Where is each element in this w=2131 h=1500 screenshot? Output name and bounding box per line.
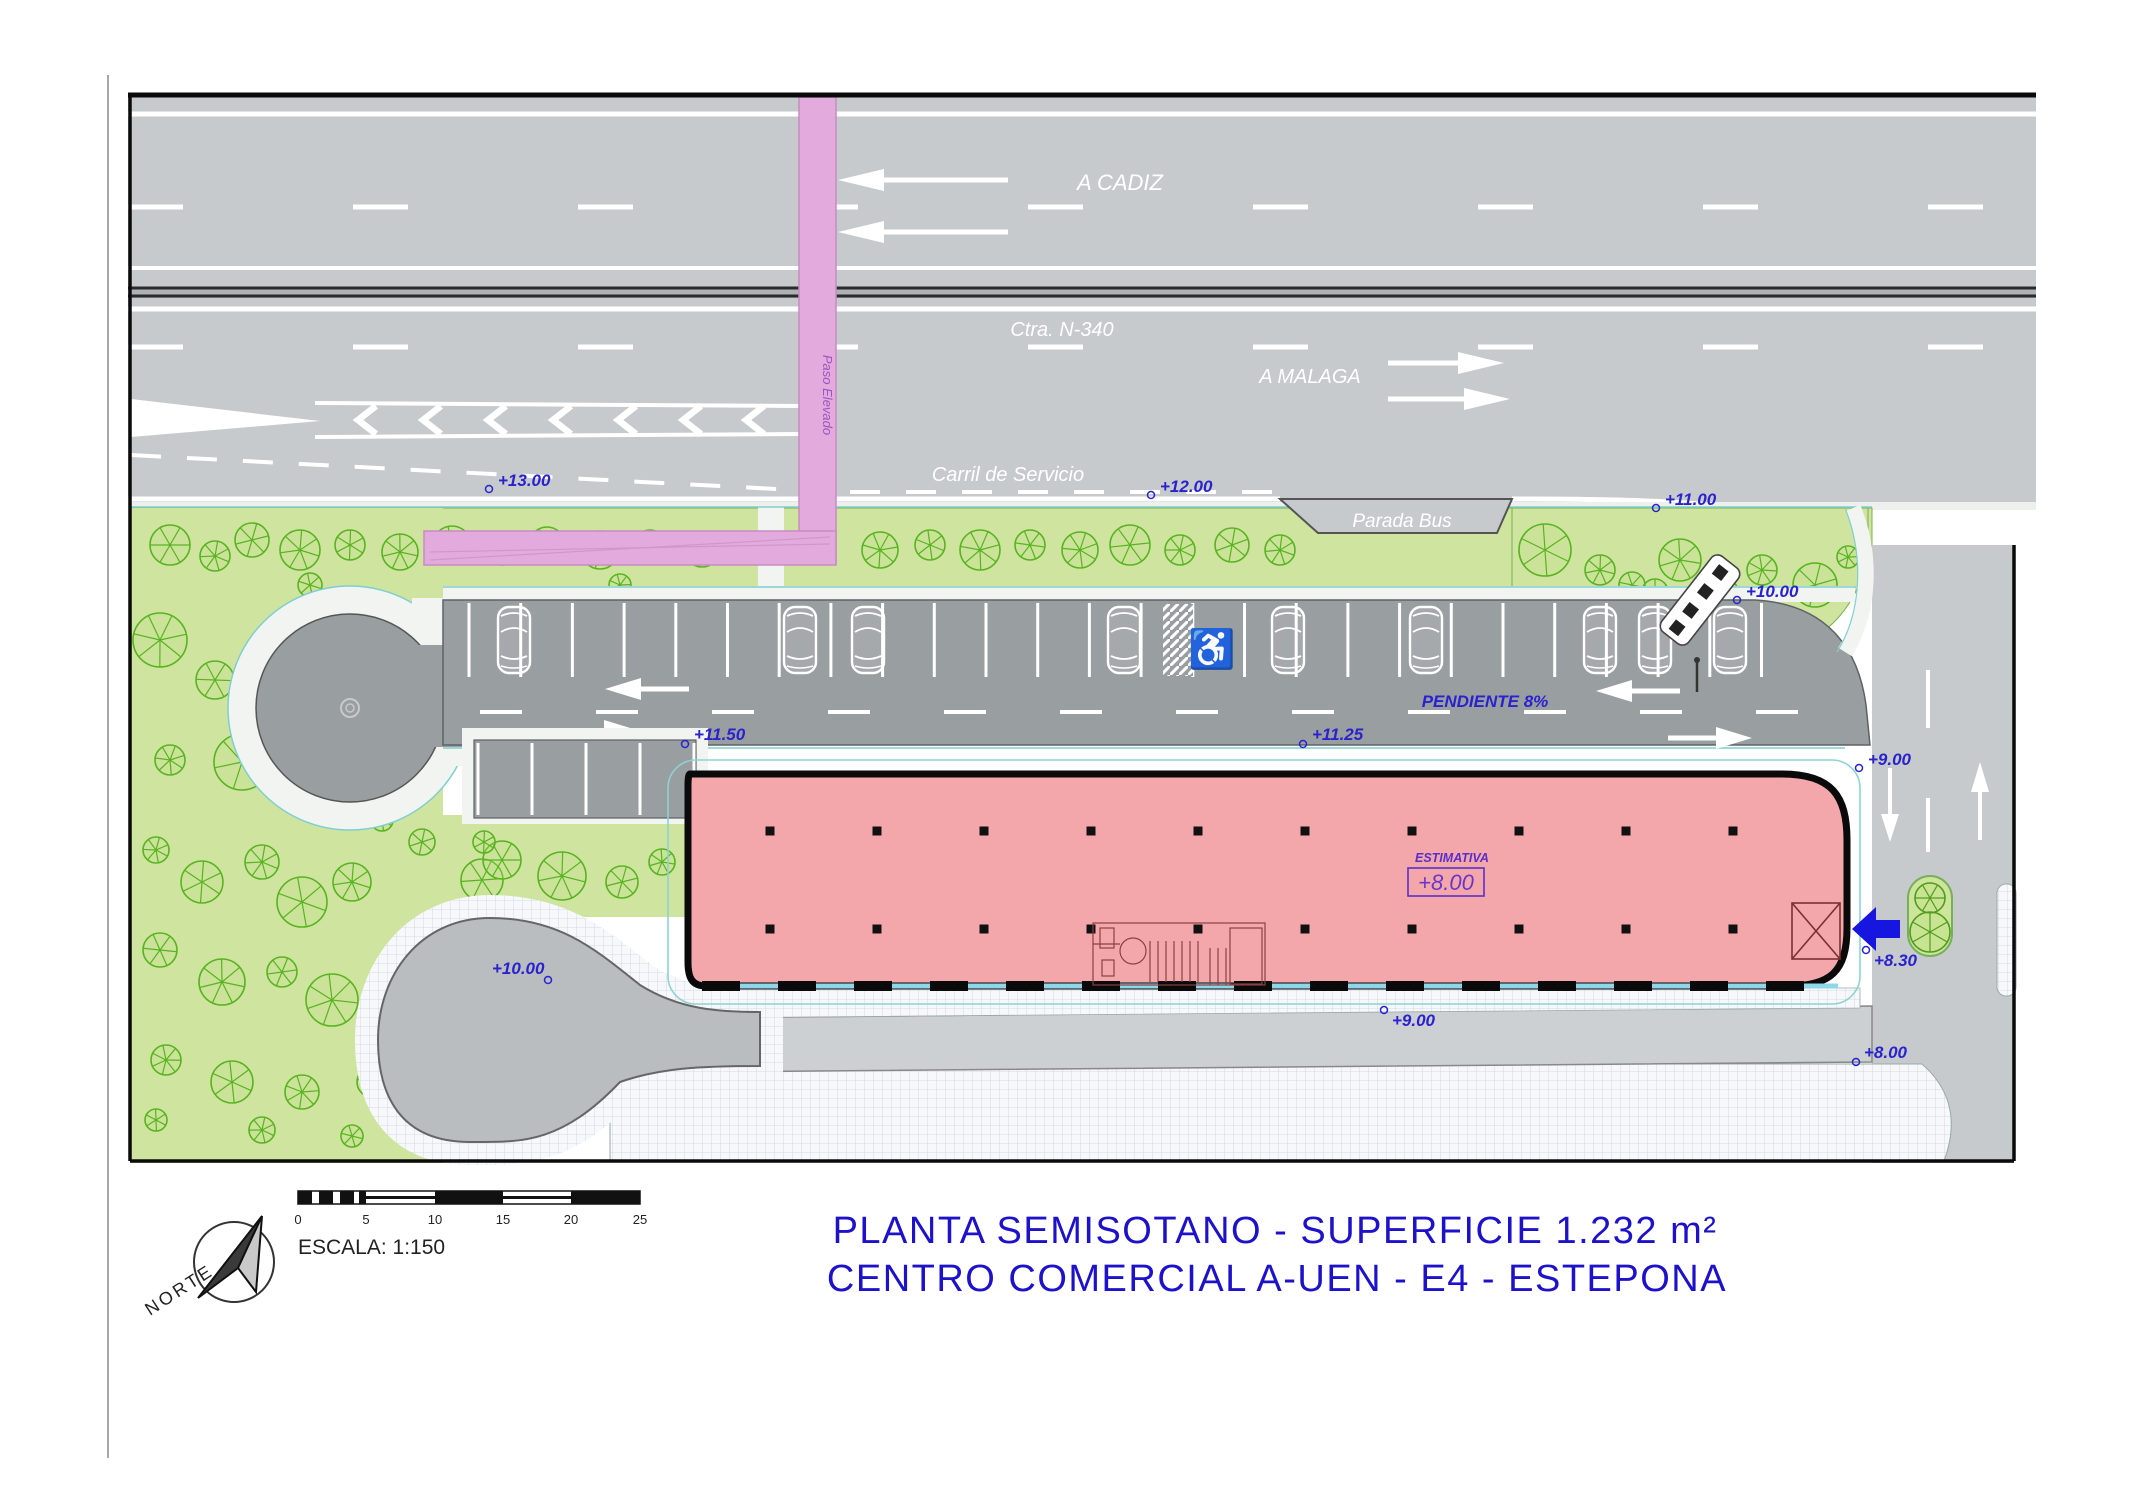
facade-pier xyxy=(1234,981,1272,991)
tree-icon xyxy=(306,974,358,1026)
tree-icon xyxy=(249,1117,275,1143)
facade-pier xyxy=(1462,981,1500,991)
tree-icon xyxy=(333,863,371,901)
wheelchair-icon: ♿ xyxy=(1188,627,1235,671)
tree-icon xyxy=(1110,525,1150,565)
scale-tick-5: 5 xyxy=(362,1212,369,1227)
parked-car xyxy=(1714,607,1746,673)
tree-icon xyxy=(199,959,245,1005)
a-cadiz-label: A CADIZ xyxy=(1075,170,1165,195)
elev-8-30: +8.30 xyxy=(1874,951,1918,970)
facade-pier xyxy=(1690,981,1728,991)
column xyxy=(1515,925,1524,934)
tree-icon xyxy=(1747,555,1777,585)
elev-10-right: +10.00 xyxy=(1746,582,1799,601)
tree-icon xyxy=(235,523,269,557)
tree-icon xyxy=(862,532,898,568)
tree-icon xyxy=(267,957,297,987)
facade-pier xyxy=(1614,981,1652,991)
scale-tick-10: 10 xyxy=(428,1212,442,1227)
facade-pier xyxy=(1538,981,1576,991)
parked-car xyxy=(1108,607,1140,673)
column xyxy=(980,827,989,836)
column xyxy=(1408,827,1417,836)
column xyxy=(1622,925,1631,934)
plan-page: ♿ xyxy=(0,0,2131,1500)
site-plan: ♿ xyxy=(0,0,2131,1500)
column xyxy=(766,925,775,934)
tree-icon xyxy=(145,1109,167,1131)
estimativa-value: +8.00 xyxy=(1418,870,1474,895)
tree-icon xyxy=(1215,528,1249,562)
tree-icon xyxy=(341,1125,363,1147)
a-malaga-label: A MALAGA xyxy=(1258,366,1361,388)
tree-icon xyxy=(285,1075,319,1109)
facade-pier xyxy=(1310,981,1348,991)
tree-icon xyxy=(151,1045,181,1075)
circular-plaza xyxy=(228,586,472,830)
facade-pier xyxy=(1082,981,1120,991)
column xyxy=(980,925,989,934)
tree-icon xyxy=(1659,539,1701,581)
tree-icon xyxy=(335,530,365,560)
column xyxy=(1087,827,1096,836)
tree-icon xyxy=(143,837,169,863)
elev-9-right: +9.00 xyxy=(1868,750,1912,769)
facade-pier xyxy=(930,981,968,991)
elev-11-25: +11.25 xyxy=(1312,725,1364,744)
bottom-hatch-area xyxy=(610,1064,1951,1161)
parked-car xyxy=(1584,607,1616,673)
facade-pier xyxy=(1006,981,1044,991)
tree-icon xyxy=(473,831,495,853)
tree-icon xyxy=(1015,530,1045,560)
parked-car xyxy=(1410,607,1442,673)
tree-icon xyxy=(1915,883,1945,913)
elev-12: +12.00 xyxy=(1160,477,1213,496)
scale-tick-15: 15 xyxy=(496,1212,510,1227)
parked-car xyxy=(784,607,816,673)
column xyxy=(1515,827,1524,836)
column xyxy=(1301,827,1310,836)
tree-icon xyxy=(245,845,279,879)
tree-icon xyxy=(200,541,230,571)
column xyxy=(1301,925,1310,934)
scale-tick-0: 0 xyxy=(294,1212,301,1227)
parked-car xyxy=(852,607,884,673)
tree-icon xyxy=(211,1061,253,1103)
scale-bar: 0 5 10 15 20 25 ESCALA: 1:150 xyxy=(294,1191,647,1259)
scale-label: ESCALA: 1:150 xyxy=(298,1236,445,1259)
tree-icon xyxy=(1910,912,1950,952)
elev-13: +13.00 xyxy=(498,471,551,490)
tree-icon xyxy=(1585,555,1615,585)
carril-servicio-label: Carril de Servicio xyxy=(932,464,1084,486)
parked-car xyxy=(498,607,530,673)
tree-icon xyxy=(382,534,418,570)
column xyxy=(873,827,882,836)
scale-tick-20: 20 xyxy=(564,1212,578,1227)
tree-icon xyxy=(150,525,190,565)
column xyxy=(1729,827,1738,836)
tree-icon xyxy=(133,613,187,667)
tree-icon xyxy=(409,829,435,855)
facade-pier xyxy=(778,981,816,991)
estimativa-label: ESTIMATIVA xyxy=(1415,851,1489,865)
tree-icon xyxy=(181,861,223,903)
elev-9-bottom: +9.00 xyxy=(1392,1011,1436,1030)
tree-icon xyxy=(1165,535,1195,565)
parada-bus-label: Parada Bus xyxy=(1352,511,1452,532)
elev-10-path: +10.00 xyxy=(492,959,545,978)
column xyxy=(1408,925,1417,934)
elev-11: +11.00 xyxy=(1665,490,1717,509)
column xyxy=(1622,827,1631,836)
facade-pier xyxy=(1158,981,1196,991)
column xyxy=(1194,925,1203,934)
tree-icon xyxy=(1062,532,1098,568)
ctra-n340-label: Ctra. N-340 xyxy=(1010,319,1113,341)
column xyxy=(1194,827,1203,836)
tree-icon xyxy=(1519,524,1571,576)
building-semibasement: ESTIMATIVA +8.00 xyxy=(668,760,1860,1004)
elev-8-right: +8.00 xyxy=(1864,1043,1908,1062)
tree-icon xyxy=(915,530,945,560)
tree-icon xyxy=(280,530,320,570)
parked-car xyxy=(1272,607,1304,673)
column xyxy=(766,827,775,836)
scale-tick-25: 25 xyxy=(633,1212,647,1227)
column xyxy=(1729,925,1738,934)
title-line-2: CENTRO COMERCIAL A-UEN - E4 - ESTEPONA xyxy=(827,1258,1727,1300)
tree-icon xyxy=(606,866,638,898)
facade-pier xyxy=(854,981,892,991)
column xyxy=(873,925,882,934)
planter-island xyxy=(1908,876,1952,956)
title-line-1: PLANTA SEMISOTANO - SUPERFICIE 1.232 m² xyxy=(833,1210,1718,1252)
tree-icon xyxy=(538,852,586,900)
paso-elevado-label: Paso Elevado xyxy=(820,355,835,435)
elev-11-50: +11.50 xyxy=(694,725,746,744)
facade-pier xyxy=(1766,981,1804,991)
tree-icon xyxy=(649,849,675,875)
tree-icon xyxy=(960,530,1000,570)
facade-pier xyxy=(1386,981,1424,991)
tree-icon xyxy=(143,933,177,967)
column xyxy=(1087,925,1096,934)
tree-icon xyxy=(155,745,185,775)
tree-icon xyxy=(277,877,327,927)
facade-pier xyxy=(702,981,740,991)
north-arrow-icon: NORTE xyxy=(141,1216,274,1319)
tree-icon xyxy=(1265,535,1295,565)
pendiente-label: PENDIENTE 8% xyxy=(1422,692,1549,711)
